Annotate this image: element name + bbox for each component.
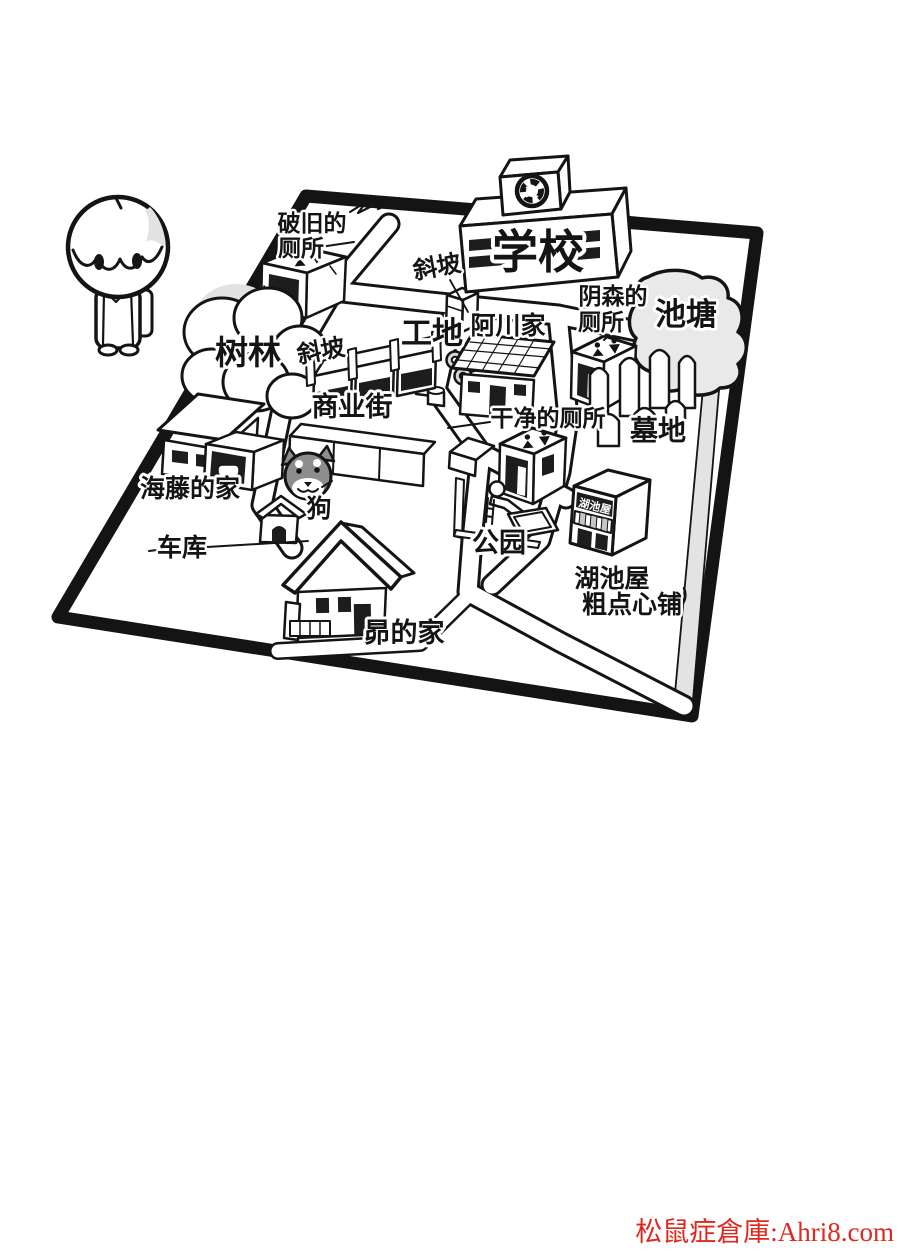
watermark-text: 松鼠症倉庫:Ahri8.com [635, 1217, 894, 1247]
label-creepy-toilet-line1: 阴森的 [579, 283, 648, 310]
label-dog: 狗 [306, 494, 331, 523]
label-cemetery: 墓地 [629, 414, 686, 447]
label-garage: 车库 [157, 533, 207, 562]
dog-house-door [272, 526, 286, 543]
eye [94, 254, 104, 270]
foot [99, 345, 117, 355]
label-school: 学校 [492, 225, 584, 279]
chibi-character [68, 197, 168, 355]
label-subaru-house: 昴的家 [364, 617, 445, 649]
foot [120, 345, 138, 355]
label-akawa-house: 阿川家 [470, 311, 545, 340]
label-creepy-toilet-line2: 厕所 [578, 310, 624, 336]
label-old-toilet-line2: 厕所 [278, 236, 324, 262]
label-shopping-street: 商业街 [312, 392, 393, 423]
label-clean-toilet: 干净的厕所 [491, 405, 606, 432]
school-emblem-char: 文 [525, 184, 539, 200]
kid-on-slide [490, 482, 505, 497]
label-forest: 树林 [215, 333, 281, 372]
label-pond: 池塘 [655, 297, 717, 333]
label-old-toilet-line1: 破旧的 [278, 210, 347, 237]
eye [132, 253, 142, 269]
dog [282, 446, 334, 499]
label-snack-shop-line2: 粗点心铺 [582, 590, 682, 619]
label-snack-shop-line1: 湖池屋 [574, 564, 649, 593]
label-construction: 工地 [401, 316, 463, 352]
label-kaito-house: 海藤的家 [140, 474, 240, 503]
manga-map-page: 文 [0, 0, 900, 1260]
label-park: 公园 [472, 528, 526, 559]
snack-shop: 湖池屋 [570, 470, 650, 555]
